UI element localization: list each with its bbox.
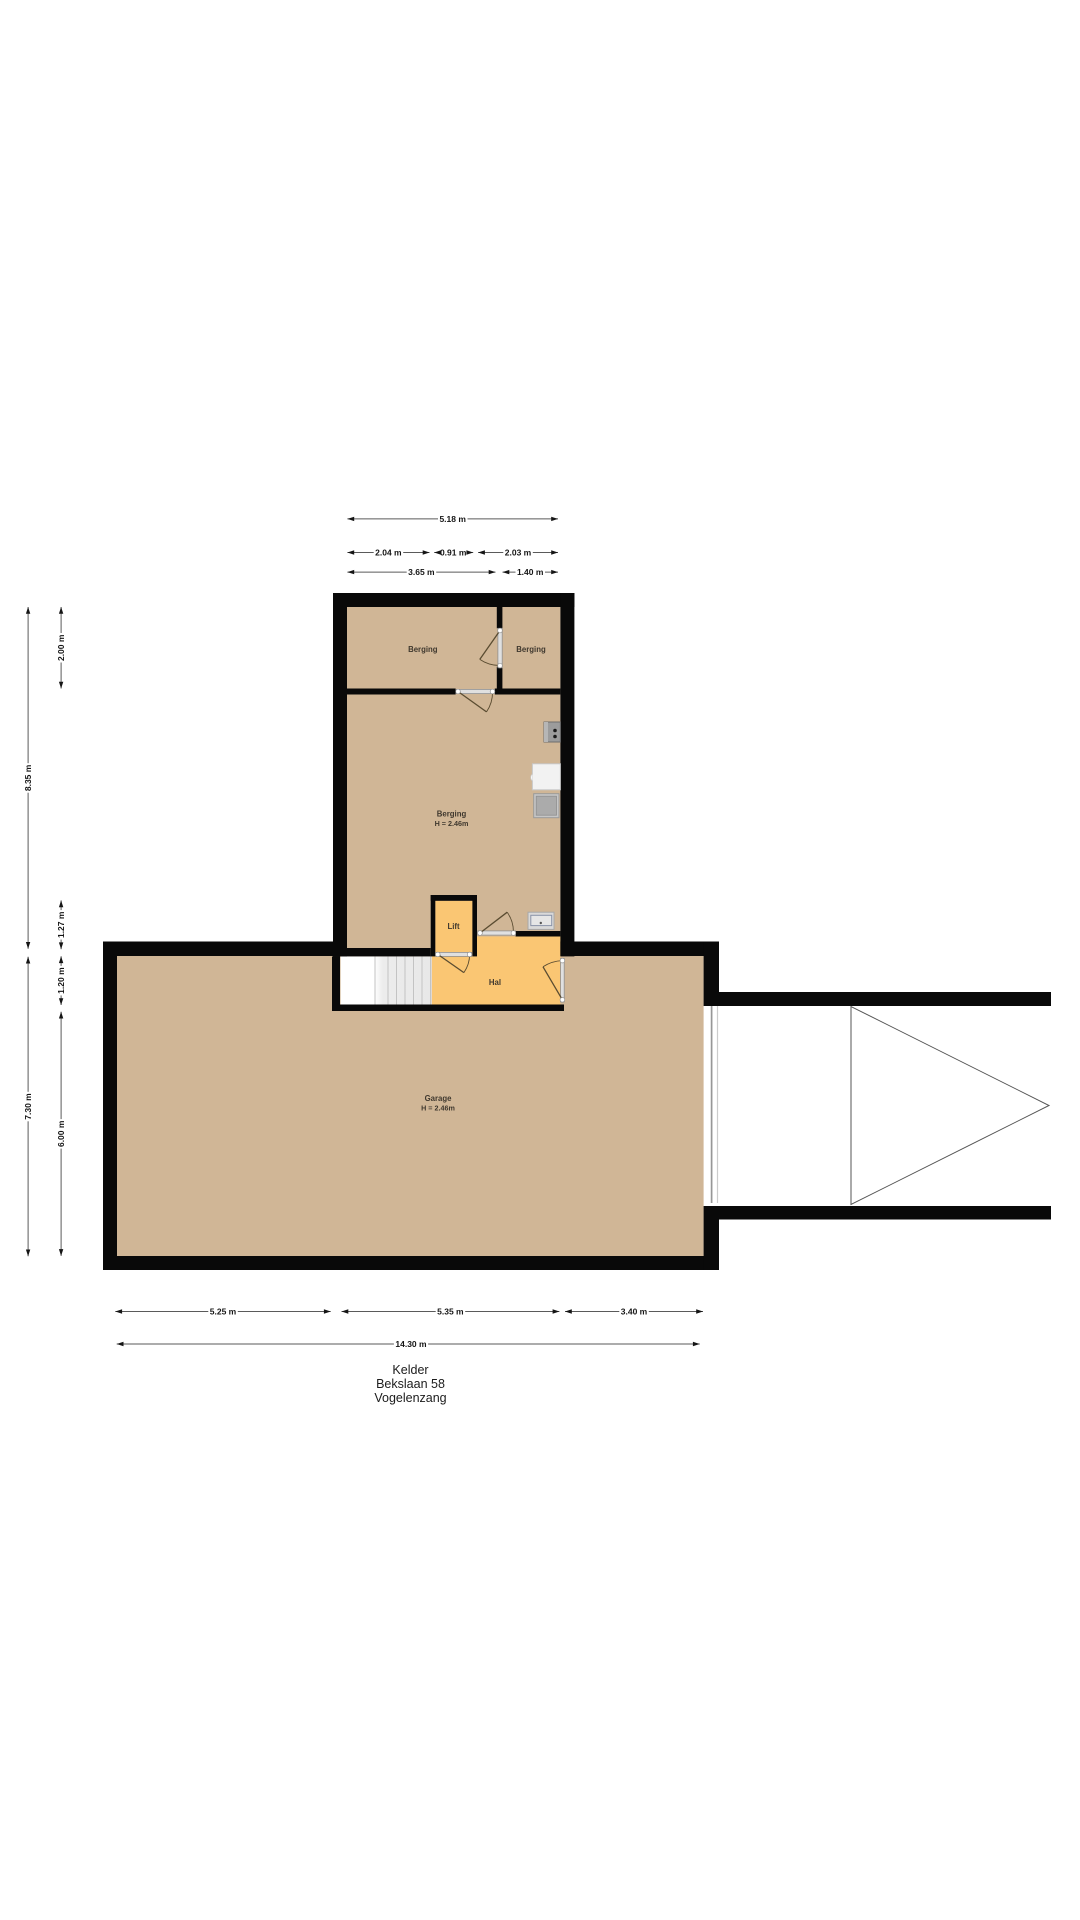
svg-text:1.20 m: 1.20 m <box>56 967 66 994</box>
svg-text:H = 2.46m: H = 2.46m <box>421 1104 455 1113</box>
svg-text:14.30 m: 14.30 m <box>395 1339 427 1349</box>
svg-text:Bekslaan 58: Bekslaan 58 <box>376 1377 445 1391</box>
svg-text:Berging: Berging <box>516 645 546 654</box>
svg-text:7.30 m: 7.30 m <box>23 1093 33 1120</box>
svg-text:0.91 m: 0.91 m <box>440 548 467 558</box>
svg-text:2.00 m: 2.00 m <box>56 634 66 661</box>
svg-text:Berging: Berging <box>408 645 438 654</box>
svg-text:1.27 m: 1.27 m <box>56 911 66 938</box>
svg-text:5.35 m: 5.35 m <box>437 1307 464 1317</box>
svg-text:5.18 m: 5.18 m <box>439 514 466 524</box>
svg-text:Hal: Hal <box>489 978 501 987</box>
svg-text:Kelder: Kelder <box>392 1363 428 1377</box>
svg-text:3.65 m: 3.65 m <box>408 567 435 577</box>
svg-text:Vogelenzang: Vogelenzang <box>374 1391 446 1405</box>
svg-text:5.25 m: 5.25 m <box>210 1307 237 1317</box>
svg-text:Garage: Garage <box>425 1094 453 1103</box>
svg-text:Lift: Lift <box>447 922 460 931</box>
svg-text:1.40 m: 1.40 m <box>517 567 544 577</box>
svg-text:2.04 m: 2.04 m <box>375 548 402 558</box>
svg-text:Berging: Berging <box>437 810 467 819</box>
svg-text:6.00 m: 6.00 m <box>56 1120 66 1147</box>
svg-text:3.40 m: 3.40 m <box>621 1307 648 1317</box>
svg-text:8.35 m: 8.35 m <box>23 764 33 791</box>
svg-text:H = 2.46m: H = 2.46m <box>435 819 469 828</box>
svg-text:2.03 m: 2.03 m <box>505 548 532 558</box>
